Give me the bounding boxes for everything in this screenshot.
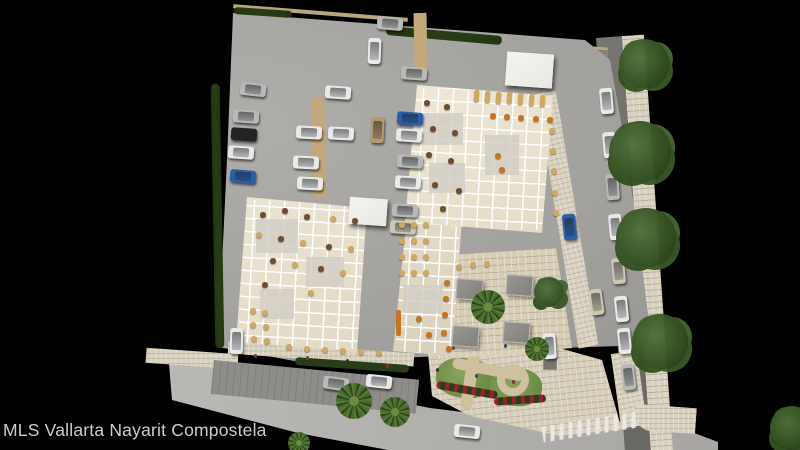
building-upper-floorplan (405, 85, 553, 233)
furniture-tan (262, 310, 268, 316)
furniture-tan (376, 350, 382, 356)
lounge-chair (474, 90, 480, 102)
furniture-brown (262, 282, 268, 288)
furniture-brown (278, 236, 284, 242)
pergola-cabana (502, 321, 530, 344)
furniture-tan (399, 238, 405, 244)
car-tan (371, 117, 385, 143)
furniture-tan (399, 270, 405, 276)
furniture-brown (304, 214, 310, 220)
car-silver (376, 16, 403, 31)
furniture-tan (256, 232, 262, 238)
car-white (368, 38, 382, 64)
car-blue (229, 169, 256, 184)
furniture-orange (533, 116, 539, 122)
person (475, 374, 478, 378)
watermark-text: MLS Vallarta Nayarit Compostela (3, 420, 267, 441)
furniture-orange (547, 117, 553, 123)
car-white (599, 87, 614, 114)
street-tree (609, 121, 671, 183)
room-floor (403, 285, 443, 313)
car-white (614, 295, 630, 322)
car-white (325, 85, 352, 100)
furniture-tan (456, 264, 462, 270)
furniture-orange (416, 316, 422, 322)
street-tree (632, 314, 688, 370)
car-blue (397, 111, 424, 126)
furniture-tan (300, 240, 306, 246)
furniture-tan (358, 349, 364, 355)
parking-walkway (413, 13, 427, 71)
street-tree (770, 406, 800, 450)
person (504, 344, 507, 348)
car-white (395, 175, 422, 190)
car-white (228, 145, 255, 160)
lounge-chair (485, 91, 491, 103)
car-beige (611, 257, 626, 284)
person (512, 380, 515, 384)
furniture-tan (411, 254, 417, 260)
car-blue (562, 213, 578, 240)
palm-tree (336, 383, 372, 419)
furniture-tan (550, 148, 556, 154)
furniture-orange (443, 296, 449, 302)
car-white (230, 328, 243, 354)
furniture-tan (263, 324, 269, 330)
furniture-brown (432, 182, 438, 188)
furniture-tan (304, 346, 310, 352)
furniture-brown (352, 218, 358, 224)
furniture-tan (348, 246, 354, 252)
furniture-brown (424, 100, 430, 106)
furniture-tan (551, 168, 557, 174)
furniture-brown (444, 104, 450, 110)
furniture-orange (518, 115, 524, 121)
furniture-tan (423, 222, 429, 228)
furniture-tan (411, 238, 417, 244)
furniture-brown (452, 130, 458, 136)
furniture-tan (286, 344, 292, 350)
furniture-tan (423, 270, 429, 276)
car-white (293, 155, 320, 169)
furniture-orange (441, 330, 447, 336)
furniture-tan (470, 262, 476, 268)
person (254, 354, 257, 358)
room-floor (256, 219, 298, 253)
furniture-orange (495, 153, 501, 159)
car-silver (239, 82, 266, 98)
furniture-tan (411, 270, 417, 276)
person (436, 368, 439, 372)
car-black (231, 127, 258, 142)
lounge-chair (518, 93, 524, 105)
palm-tree (525, 337, 549, 361)
palm-tree (380, 397, 410, 427)
lounge-chair (529, 94, 535, 106)
person (386, 364, 389, 368)
car-silver (392, 203, 419, 217)
furniture-brown (430, 126, 436, 132)
furniture-tan (549, 128, 555, 134)
furniture-tan (340, 270, 346, 276)
room-floor (423, 113, 463, 145)
person (346, 359, 349, 363)
person (452, 346, 455, 350)
aerial-site-render: MLS Vallarta Nayarit Compostela (0, 0, 800, 450)
furniture-tan (250, 308, 256, 314)
furniture-tan (250, 322, 256, 328)
lounge-chair (507, 92, 513, 104)
furniture-brown (260, 212, 266, 218)
car-white (617, 327, 633, 354)
furniture-orange (426, 332, 432, 338)
furniture-tan (484, 261, 490, 267)
pergola-cabana (505, 274, 533, 297)
furniture-brown (440, 206, 446, 212)
furniture-orange (444, 280, 450, 286)
pergola-cabana (451, 325, 479, 348)
furniture-orange (490, 113, 496, 119)
furniture-tan (308, 290, 314, 296)
lounge-chair (496, 92, 502, 104)
furniture-tan (553, 210, 559, 216)
utility-box (543, 358, 557, 370)
lounge-chair (540, 95, 546, 107)
furniture-tan (292, 262, 298, 268)
street-tree (619, 39, 669, 89)
furniture-tan (423, 254, 429, 260)
car-silver (233, 109, 260, 124)
furniture-brown (456, 188, 462, 194)
furniture-tan (251, 336, 257, 342)
furniture-tan (399, 222, 405, 228)
palm-tree (471, 290, 505, 324)
car-silver (401, 66, 428, 81)
car-white (453, 424, 480, 440)
car-white (365, 374, 392, 390)
car-white (297, 176, 324, 190)
person (306, 356, 309, 360)
furniture-tan (264, 338, 270, 344)
room-floor (306, 257, 344, 287)
car-white (328, 126, 355, 140)
furniture-tan (330, 216, 336, 222)
boundary-hedge (211, 84, 225, 348)
furniture-tan (423, 238, 429, 244)
furniture-tan (411, 222, 417, 228)
furniture-tan (552, 190, 558, 196)
furniture-orange (499, 167, 505, 173)
furniture-orange (504, 114, 510, 120)
furniture-orange (442, 312, 448, 318)
street-tree (616, 208, 676, 268)
furniture-tan (322, 347, 328, 353)
car-white (396, 128, 423, 143)
bar-counter (396, 310, 401, 336)
furniture-brown (448, 158, 454, 164)
palm-tree (288, 432, 310, 450)
furniture-brown (282, 208, 288, 214)
furniture-tan (340, 348, 346, 354)
street-tree (534, 277, 564, 307)
furniture-tan (399, 254, 405, 260)
furniture-brown (426, 152, 432, 158)
furniture-brown (326, 244, 332, 250)
car-silver (397, 154, 424, 169)
rooftop-slab (505, 51, 554, 88)
furniture-brown (318, 266, 324, 272)
car-silver (605, 173, 620, 200)
car-white (296, 125, 323, 139)
furniture-brown (270, 258, 276, 264)
